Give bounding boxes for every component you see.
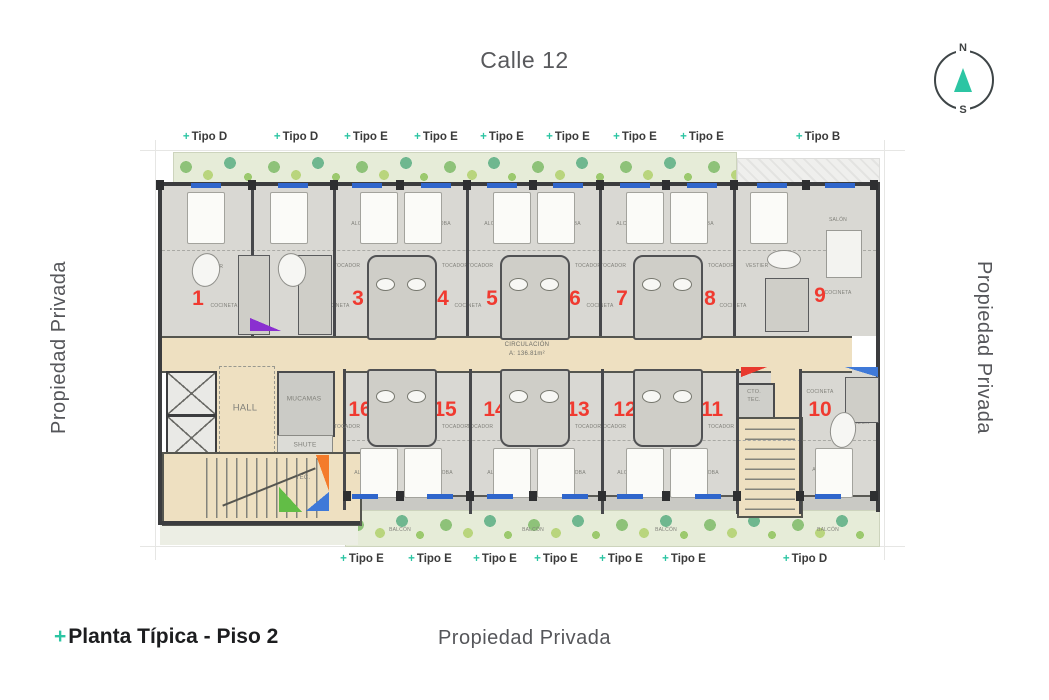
column bbox=[463, 180, 471, 190]
bed bbox=[404, 192, 442, 244]
plus-icon: + bbox=[534, 553, 541, 565]
unit-number-1: 1 bbox=[192, 287, 204, 311]
room-label-saln: SALÓN bbox=[829, 217, 847, 223]
sink-basin bbox=[642, 390, 661, 403]
type-label-top-9: +Tipo B bbox=[796, 131, 840, 143]
wall-band-bottom-left bbox=[343, 369, 346, 510]
sink-basin bbox=[673, 390, 692, 403]
bed bbox=[670, 192, 708, 244]
sink-basin bbox=[673, 278, 692, 291]
staircase-right bbox=[737, 417, 803, 518]
room-label-shute: SHUTE bbox=[293, 442, 316, 449]
window-glazing bbox=[757, 183, 787, 188]
column bbox=[396, 491, 404, 501]
unit-number-3: 3 bbox=[352, 287, 364, 311]
wall-left-facade bbox=[158, 182, 162, 525]
bed bbox=[187, 192, 225, 244]
circulation-label-line1: CIRCULACIÓN bbox=[467, 341, 587, 350]
plus-icon: + bbox=[613, 131, 620, 143]
room-label-tocador: TOCADOR bbox=[334, 424, 360, 430]
stair-treads bbox=[745, 425, 795, 510]
bed bbox=[270, 192, 308, 244]
bed bbox=[360, 192, 398, 244]
bathroom-core bbox=[500, 255, 570, 340]
floor-plan-page: Calle 12 N S Propiedad Privada Propiedad… bbox=[0, 0, 1049, 700]
column bbox=[870, 491, 878, 501]
window-glazing bbox=[352, 494, 378, 499]
column bbox=[466, 491, 474, 501]
bathroom-core bbox=[633, 255, 703, 340]
type-label-bottom-7: +Tipo D bbox=[783, 553, 827, 565]
room-label-tocador: TOCADOR bbox=[600, 263, 626, 269]
column bbox=[330, 180, 338, 190]
unit-number-8: 8 bbox=[704, 287, 716, 311]
sink-basin bbox=[642, 278, 661, 291]
room-label-mucamas: MUCAMAS bbox=[287, 396, 322, 403]
bed bbox=[750, 192, 788, 244]
bed bbox=[537, 448, 575, 498]
plus-icon: + bbox=[783, 553, 790, 565]
wall-bottom-left bbox=[158, 521, 360, 525]
column bbox=[796, 491, 804, 501]
sink-basin bbox=[376, 278, 395, 291]
plus-icon: + bbox=[340, 553, 347, 565]
unit-number-5: 5 bbox=[486, 287, 498, 311]
unit-number-11: 11 bbox=[701, 398, 723, 422]
plus-icon: + bbox=[796, 131, 803, 143]
furniture bbox=[826, 230, 862, 278]
window-glazing bbox=[695, 494, 721, 499]
unit-divider-wall bbox=[466, 185, 469, 336]
column bbox=[733, 491, 741, 501]
sink-basin bbox=[509, 390, 528, 403]
plus-icon: + bbox=[473, 553, 480, 565]
type-label-top-4: +Tipo E bbox=[414, 131, 458, 143]
unit-number-7: 7 bbox=[616, 287, 628, 311]
shaft-marker bbox=[845, 367, 878, 377]
column bbox=[662, 491, 670, 501]
bed bbox=[815, 448, 853, 498]
survey-line-right bbox=[884, 140, 885, 560]
room-label-vestier: VESTIER bbox=[746, 263, 769, 269]
shaft-marker bbox=[250, 318, 281, 331]
window-glazing bbox=[427, 494, 453, 499]
elevator-shaft-1 bbox=[166, 371, 217, 416]
room-label-tocador: TOCADOR bbox=[575, 263, 601, 269]
bed bbox=[493, 448, 531, 498]
type-label-bottom-2: +Tipo E bbox=[408, 553, 452, 565]
unit-number-10: 10 bbox=[808, 398, 831, 422]
room-label-tocador: TOCADOR bbox=[467, 263, 493, 269]
window-glazing bbox=[553, 183, 583, 188]
bed bbox=[360, 448, 398, 498]
mucamas-room bbox=[277, 371, 335, 437]
plus-icon: + bbox=[662, 553, 669, 565]
room-label-cocineta: COCINETA bbox=[806, 389, 833, 395]
window-glazing bbox=[562, 494, 588, 499]
unit-number-6: 6 bbox=[569, 287, 581, 311]
column bbox=[343, 491, 351, 501]
room-label-tocador: TOCADOR bbox=[334, 263, 360, 269]
room-label-tocador: TOCADOR bbox=[708, 424, 734, 430]
window-glazing bbox=[352, 183, 382, 188]
plus-icon: + bbox=[480, 131, 487, 143]
room-label-balcn: BALCÓN bbox=[817, 527, 839, 533]
column bbox=[598, 491, 606, 501]
room-label-tocador: TOCADOR bbox=[442, 424, 468, 430]
sink-basin bbox=[540, 278, 559, 291]
bed bbox=[670, 448, 708, 498]
bed bbox=[493, 192, 531, 244]
bed bbox=[537, 192, 575, 244]
window-glazing bbox=[815, 494, 841, 499]
room-label-balcn: BALCÓN bbox=[655, 527, 677, 533]
type-label-top-8: +Tipo E bbox=[680, 131, 724, 143]
bed bbox=[626, 448, 664, 498]
dash-line-top-band bbox=[162, 250, 876, 251]
sink-basin bbox=[540, 390, 559, 403]
staircase-left bbox=[162, 452, 362, 526]
room-label-cto: CTO. bbox=[747, 389, 761, 395]
bathroom bbox=[765, 278, 809, 332]
survey-line-left bbox=[155, 140, 156, 560]
circulation-label: CIRCULACIÓN A: 136.81m² bbox=[467, 341, 587, 358]
bathroom-core bbox=[367, 369, 437, 447]
type-label-top-5: +Tipo E bbox=[480, 131, 524, 143]
bed bbox=[404, 448, 442, 498]
wall-right-facade bbox=[876, 182, 880, 512]
column bbox=[248, 180, 256, 190]
column bbox=[396, 180, 404, 190]
bathtub bbox=[767, 250, 801, 269]
room-label-hall: HALL bbox=[233, 403, 258, 414]
type-label-bottom-4: +Tipo E bbox=[534, 553, 578, 565]
column bbox=[156, 180, 164, 190]
plus-icon: + bbox=[414, 131, 421, 143]
sink-basin bbox=[407, 390, 426, 403]
type-label-top-1: +Tipo D bbox=[183, 131, 227, 143]
bed bbox=[626, 192, 664, 244]
floor-plan: CIRCULACIÓN A: 136.81m² +Tipo D+Tipo D+ bbox=[0, 0, 1049, 700]
room-label-balcn: BALCÓN bbox=[389, 527, 411, 533]
ground-strip-left bbox=[160, 525, 358, 545]
window-glazing bbox=[825, 183, 855, 188]
room-label-tocador: TOCADOR bbox=[708, 263, 734, 269]
room-label-tocador: TOCADOR bbox=[442, 263, 468, 269]
sink-basin bbox=[376, 390, 395, 403]
type-label-bottom-5: +Tipo E bbox=[599, 553, 643, 565]
column bbox=[596, 180, 604, 190]
type-label-top-3: +Tipo E bbox=[344, 131, 388, 143]
plus-icon: + bbox=[344, 131, 351, 143]
type-label-top-2: +Tipo D bbox=[274, 131, 318, 143]
plus-icon: + bbox=[183, 131, 190, 143]
circulation-label-line2: A: 136.81m² bbox=[467, 350, 587, 359]
type-label-top-7: +Tipo E bbox=[613, 131, 657, 143]
survey-line-top bbox=[140, 150, 905, 151]
type-label-top-6: +Tipo E bbox=[546, 131, 590, 143]
column bbox=[730, 180, 738, 190]
unit-divider-wall bbox=[733, 185, 736, 336]
window-glazing bbox=[687, 183, 717, 188]
type-label-bottom-1: +Tipo E bbox=[340, 553, 384, 565]
column bbox=[662, 180, 670, 190]
bathroom-core bbox=[367, 255, 437, 340]
column bbox=[529, 491, 537, 501]
shaft-marker bbox=[279, 487, 302, 512]
unit-number-9: 9 bbox=[814, 284, 826, 308]
window-glazing bbox=[617, 494, 643, 499]
plus-icon: + bbox=[274, 131, 281, 143]
bathroom-core bbox=[633, 369, 703, 447]
column bbox=[802, 180, 810, 190]
plus-icon: + bbox=[408, 553, 415, 565]
window-glazing bbox=[487, 494, 513, 499]
room-label-balcn: BALCÓN bbox=[522, 527, 544, 533]
unit-divider-wall bbox=[333, 185, 336, 336]
type-label-bottom-3: +Tipo E bbox=[473, 553, 517, 565]
column bbox=[870, 180, 878, 190]
room-label-tec: TEC. bbox=[296, 475, 310, 481]
room-label-cocineta: COCINETA bbox=[824, 290, 851, 296]
right-hallway bbox=[771, 369, 800, 417]
plus-icon: + bbox=[546, 131, 553, 143]
plus-icon: + bbox=[599, 553, 606, 565]
type-label-bottom-6: +Tipo E bbox=[662, 553, 706, 565]
plus-icon: + bbox=[680, 131, 687, 143]
unit-number-4: 4 bbox=[437, 287, 449, 311]
window-glazing bbox=[278, 183, 308, 188]
column bbox=[529, 180, 537, 190]
bathroom-core bbox=[500, 369, 570, 447]
shaft-marker bbox=[741, 367, 767, 377]
window-glazing bbox=[620, 183, 650, 188]
window-glazing bbox=[421, 183, 451, 188]
room-label-tec: TEC. bbox=[747, 397, 760, 403]
unit-divider-wall bbox=[599, 185, 602, 336]
room-label-cocineta: COCINETA bbox=[210, 303, 237, 309]
sink-basin bbox=[509, 278, 528, 291]
window-glazing bbox=[191, 183, 221, 188]
sink-basin bbox=[407, 278, 426, 291]
shaft-marker bbox=[316, 455, 329, 491]
window-glazing bbox=[487, 183, 517, 188]
room-label-tocador: TOCADOR bbox=[575, 424, 601, 430]
shaft-marker bbox=[306, 492, 329, 511]
